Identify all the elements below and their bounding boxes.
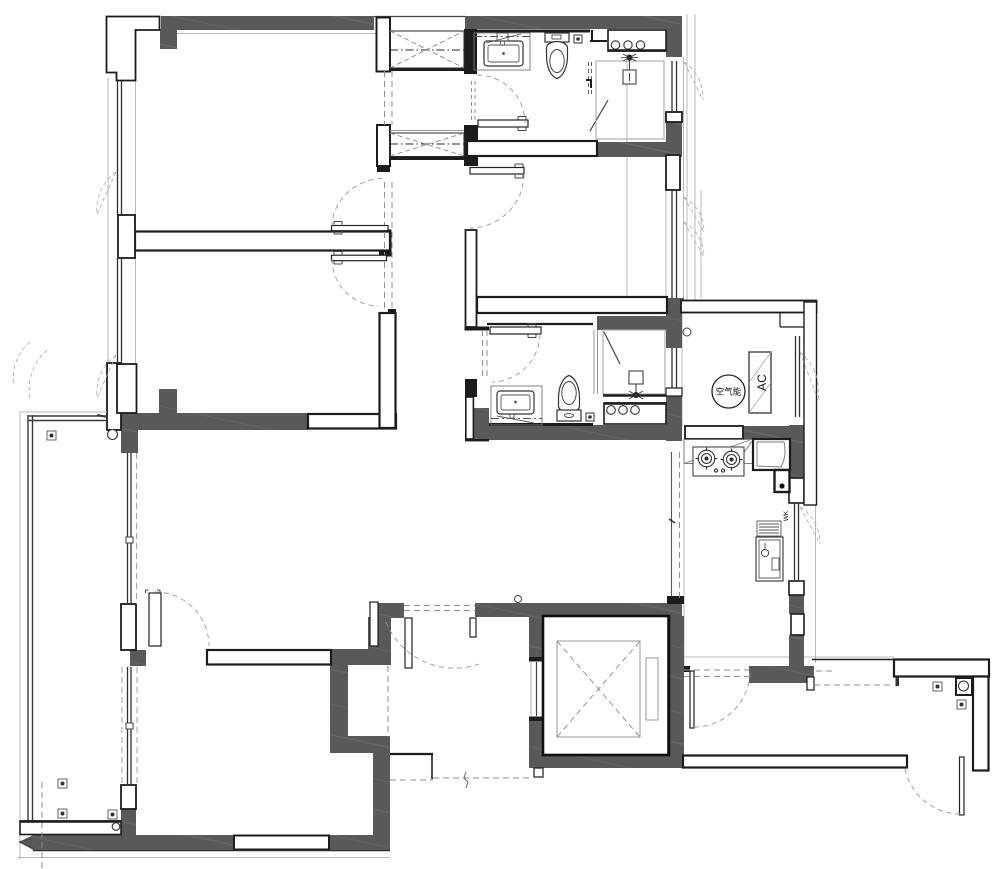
svg-text:AC: AC (755, 374, 769, 391)
svg-text:空气能: 空气能 (716, 387, 742, 397)
svg-text:WK: WK (783, 510, 790, 521)
